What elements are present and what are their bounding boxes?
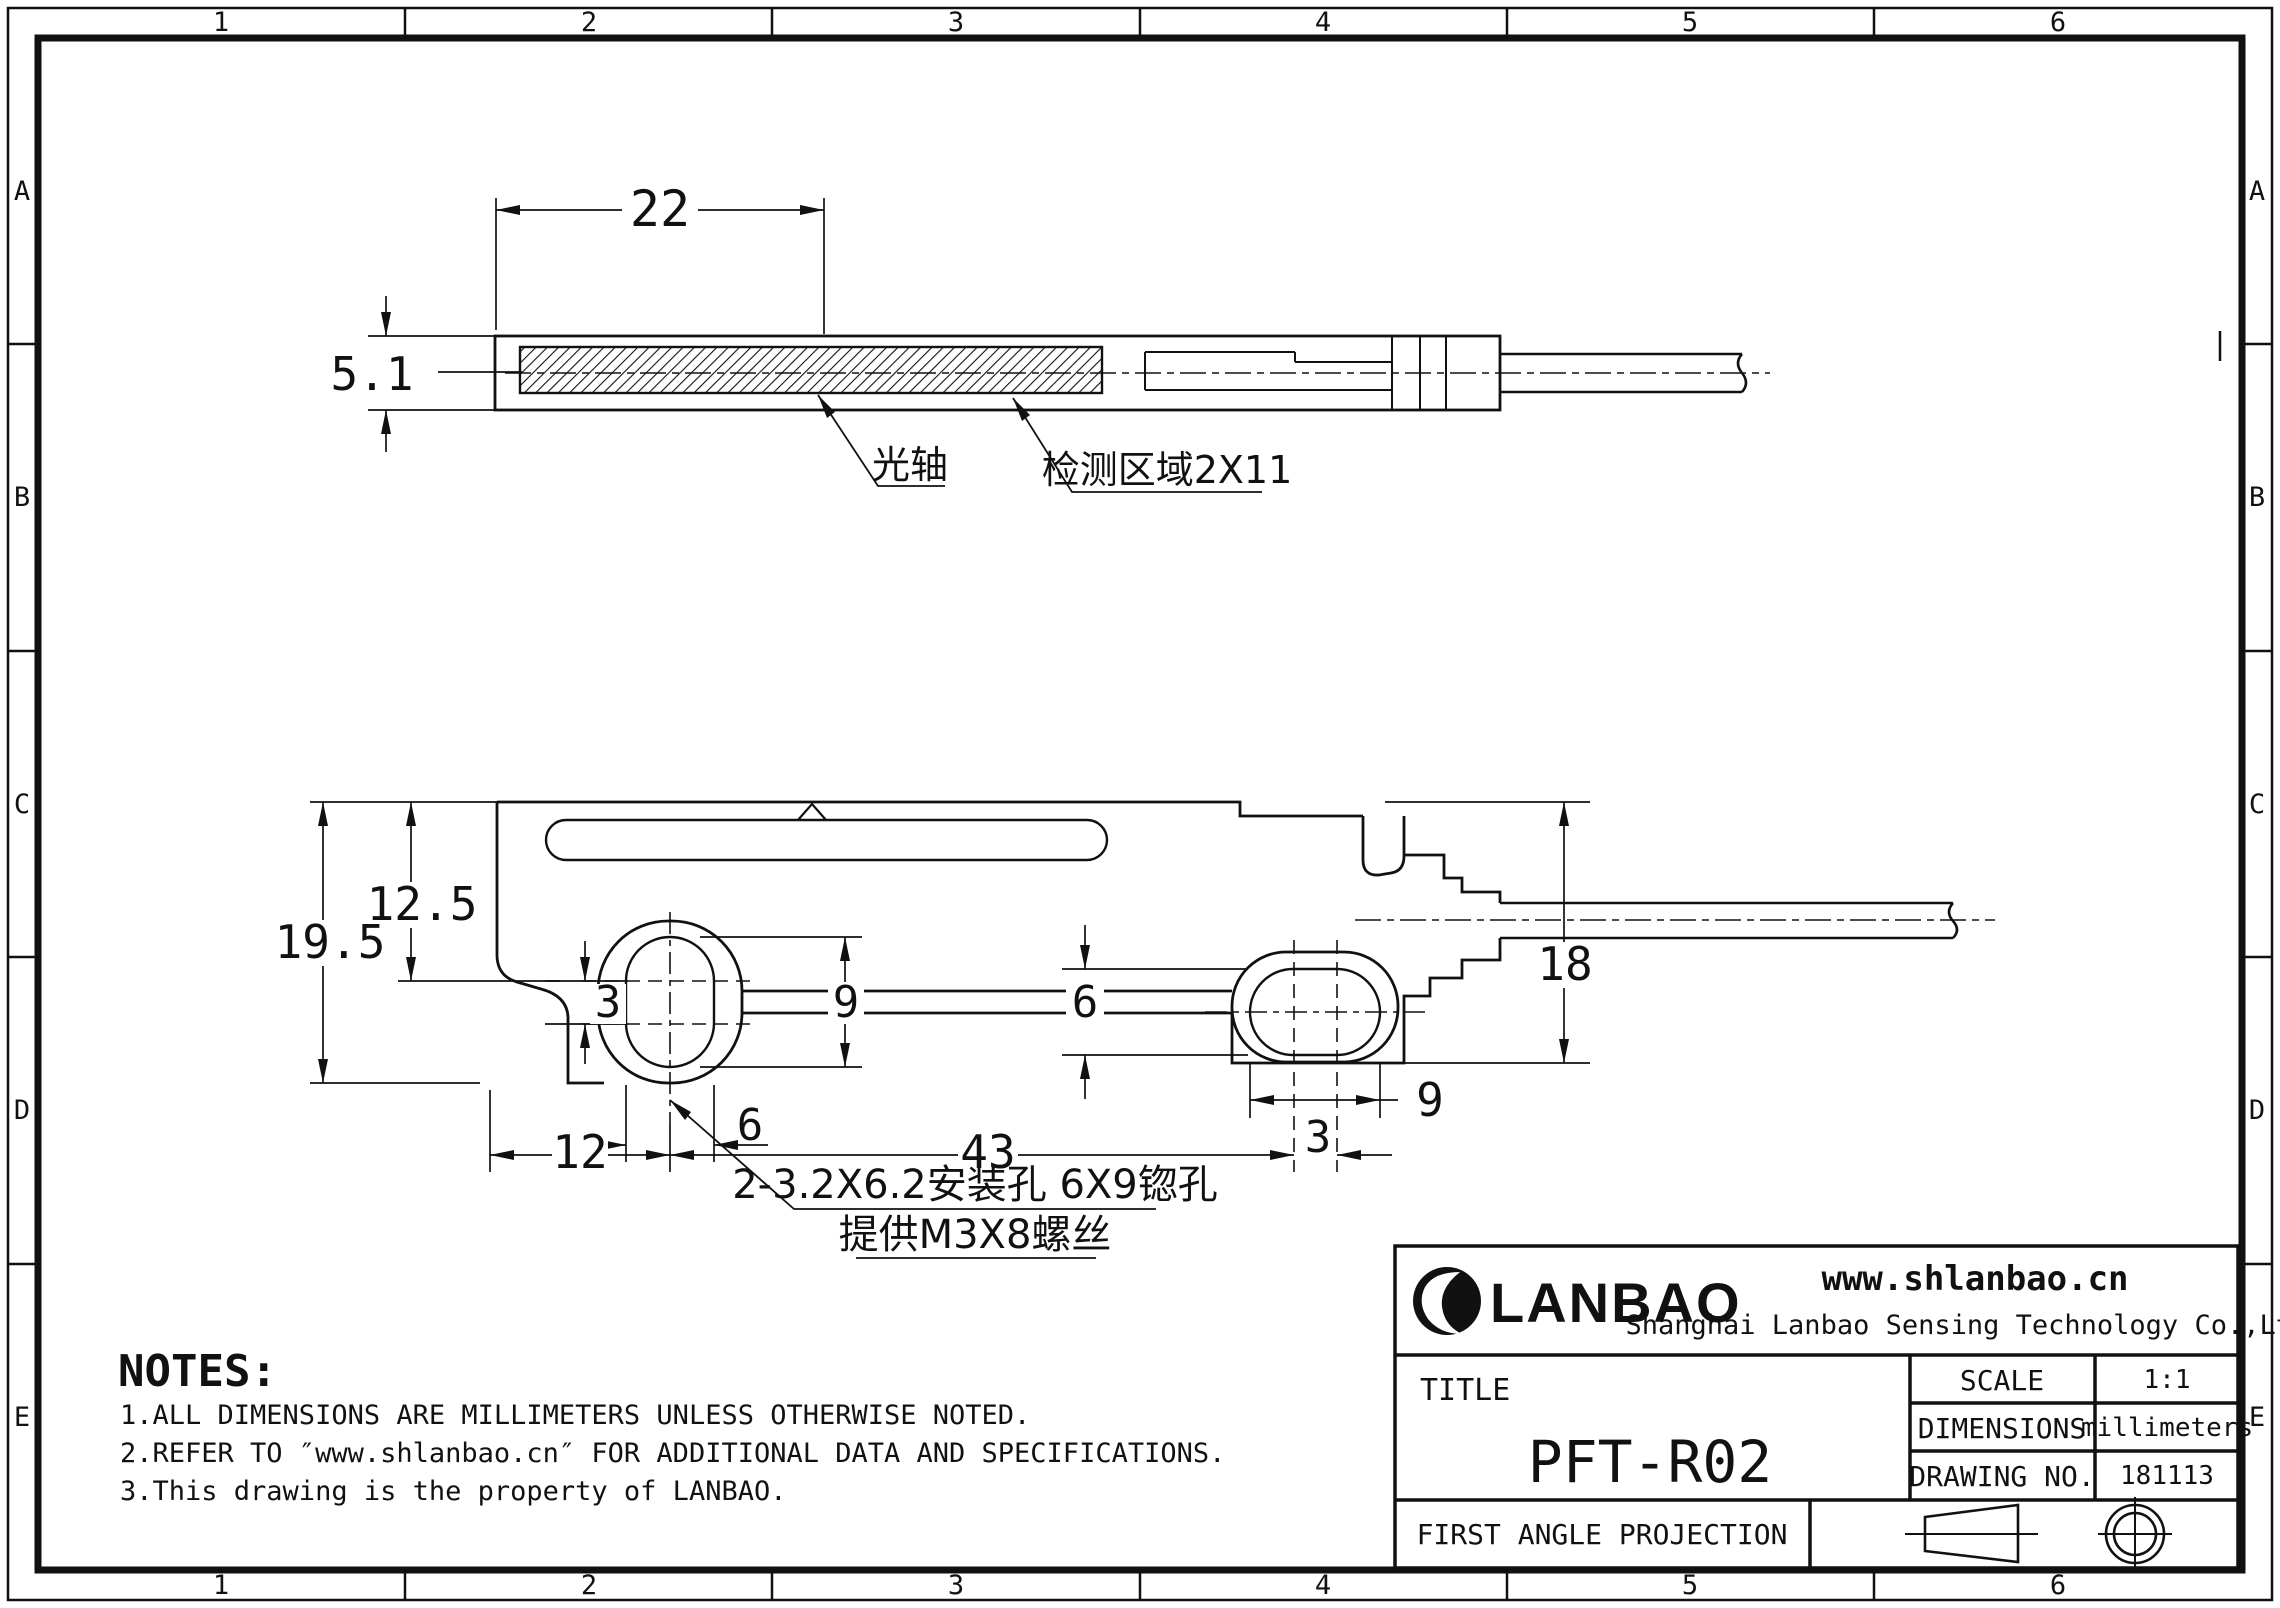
title-block: LANBAO www.shlanbao.cn Shanghai Lanbao S… [1395, 1246, 2280, 1571]
grid-row-left: B [14, 482, 30, 513]
dim-6-left: 6 [737, 1100, 764, 1151]
grid-col-top: 1 [213, 7, 229, 38]
grid-col-top: 5 [1682, 7, 1698, 38]
detection-area-label: 检测区域2X11 [1042, 448, 1293, 492]
dimensions-value: millimeters [2081, 1413, 2253, 1443]
leader-detection-area: 检测区域2X11 [1013, 398, 1292, 492]
grid-row-left: A [14, 176, 30, 207]
grid-col-bottom: 1 [213, 1570, 229, 1601]
dim-18: 18 [1537, 937, 1592, 991]
notes-heading: NOTES: [118, 1346, 277, 1397]
dim-12: 12 [552, 1125, 607, 1179]
note-item-2: 2.REFER TO ″www.shlanbao.cn″ FOR ADDITIO… [120, 1438, 1225, 1469]
grid-col-bottom: 3 [948, 1570, 964, 1601]
top-view: 22 5.1 光轴 检测区域2X11 [330, 180, 1770, 492]
optical-axis-label: 光轴 [872, 443, 948, 487]
scale-label: SCALE [1960, 1364, 2044, 1397]
dim-3-right: 3 [1305, 1112, 1332, 1163]
grid-row-left: D [14, 1095, 30, 1126]
grid-row-left: E [14, 1402, 30, 1433]
grid-row-right: A [2249, 176, 2265, 207]
drawing-sheet: 1 2 3 4 5 6 1 2 3 4 5 6 A B C D E A B C … [0, 0, 2280, 1608]
leader-arrow [818, 395, 835, 418]
grid-col-top: 6 [2050, 7, 2066, 38]
grid-row-right: B [2249, 482, 2265, 513]
leader-arrow [670, 1100, 691, 1120]
drawing-no-value: 181113 [2120, 1461, 2214, 1491]
grid-col-top: 3 [948, 7, 964, 38]
grid-col-top: 2 [581, 7, 597, 38]
dim-9-right: 9 [1416, 1073, 1444, 1127]
grid-labels: 1 2 3 4 5 6 1 2 3 4 5 6 A B C D E A B C … [14, 7, 2265, 1601]
side-view: 19.5 12.5 3 9 6 6 9 18 12 43 3 2-3.2X6.2… [275, 802, 1995, 1258]
detection-area-hatch [520, 347, 1102, 393]
note-item-1: 1.ALL DIMENSIONS ARE MILLIMETERS UNLESS … [120, 1400, 1030, 1431]
engineering-drawing-canvas: 1 2 3 4 5 6 1 2 3 4 5 6 A B C D E A B C … [0, 0, 2280, 1608]
company-name: Shanghai Lanbao Sensing Technology Co.,L… [1626, 1310, 2280, 1341]
outer-border [8, 8, 2272, 1600]
grid-ticks [8, 8, 2272, 1600]
dim-6-right: 6 [1072, 977, 1099, 1028]
website: www.shlanbao.cn [1821, 1259, 2128, 1299]
grid-col-top: 4 [1315, 7, 1331, 38]
scale-value: 1:1 [2144, 1365, 2191, 1395]
title-label: TITLE [1420, 1373, 1510, 1408]
slot-notch [798, 804, 826, 820]
grid-col-bottom: 4 [1315, 1570, 1331, 1601]
sheet-border [8, 8, 2272, 1600]
top-slot [546, 820, 1107, 860]
drawing-no-label: DRAWING NO. [1909, 1460, 2094, 1493]
grid-row-right: C [2249, 789, 2265, 820]
grid-col-bottom: 5 [1682, 1570, 1698, 1601]
dim-5-1-text: 5.1 [330, 347, 413, 401]
projection-symbol [1905, 1497, 2172, 1571]
dim-12-5: 12.5 [367, 877, 478, 931]
dimension-lines [310, 802, 1590, 1172]
grid-row-left: C [14, 789, 30, 820]
dimensions-label: DIMENSIONS [1918, 1412, 2087, 1445]
dim-22-text: 22 [630, 180, 690, 238]
note-item-3: 3.This drawing is the property of LANBAO… [120, 1476, 786, 1507]
projection-label: FIRST ANGLE PROJECTION [1417, 1518, 1788, 1551]
callout-line1: 2-3.2X6.2安装孔 6X9锪孔 [732, 1162, 1218, 1208]
body-upper-profile [497, 802, 1500, 903]
grid-col-bottom: 2 [581, 1570, 597, 1601]
dim-3-left: 3 [595, 977, 622, 1028]
callout-line2: 提供M3X8螺丝 [839, 1212, 1112, 1258]
part-number: PFT-R02 [1528, 1428, 1772, 1496]
notes-block: NOTES: 1.ALL DIMENSIONS ARE MILLIMETERS … [118, 1346, 1225, 1507]
grid-row-right: D [2249, 1095, 2265, 1126]
dim-9-left: 9 [833, 977, 860, 1028]
grid-col-bottom: 6 [2050, 1570, 2066, 1601]
